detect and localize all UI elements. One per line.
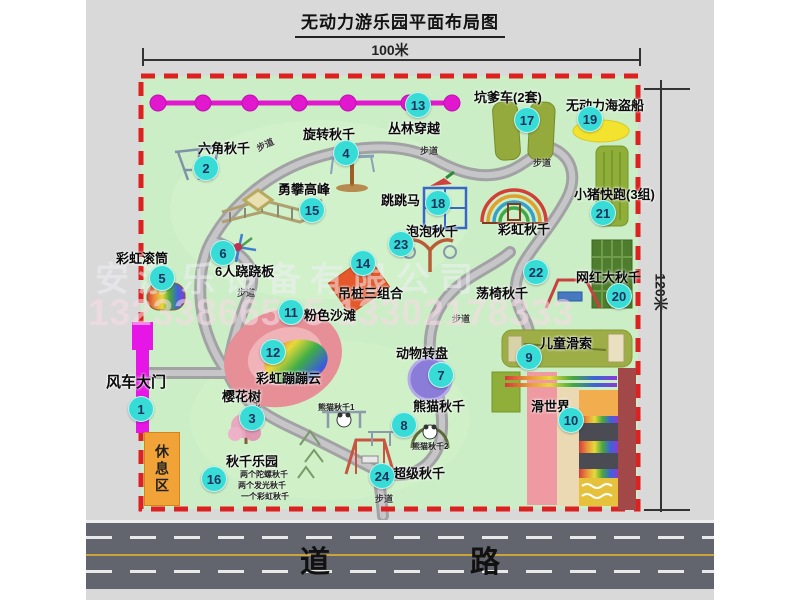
label-swing-paradise: 秋千乐园 xyxy=(226,451,278,470)
badge-19: 19 xyxy=(577,106,603,132)
label-bubble-swing: 泡泡秋千 xyxy=(406,221,458,240)
path-tag: 步道 xyxy=(375,492,393,505)
label-swing-chair: 荡椅秋千 xyxy=(476,283,528,302)
label-cherry-tree: 樱花树 xyxy=(222,386,261,405)
label-panda-swing-2: 熊猫秋千2 xyxy=(412,441,448,452)
badge-2: 2 xyxy=(193,155,219,181)
label-swing-paradise-note3: 一个彩虹秋千 xyxy=(241,491,289,502)
badge-18: 18 xyxy=(425,190,451,216)
rest-area-label: 休息区 xyxy=(152,444,172,495)
label-hanging-piles: 吊桩三组合 xyxy=(338,283,403,302)
badge-3: 3 xyxy=(239,405,265,431)
badge-23: 23 xyxy=(388,231,414,257)
badge-13: 13 xyxy=(405,92,431,118)
badge-11: 11 xyxy=(278,299,304,325)
label-rainbow-swing: 彩虹秋千 xyxy=(498,219,550,238)
label-pink-beach: 粉色沙滩 xyxy=(304,305,356,324)
badge-15: 15 xyxy=(299,197,325,223)
badge-6: 6 xyxy=(210,240,236,266)
badge-24: 24 xyxy=(369,463,395,489)
label-kids-zipline: 儿童滑索 xyxy=(540,333,592,352)
label-swing-paradise-note1: 两个陀螺秋千 xyxy=(240,469,288,480)
label-panda-swing-1: 熊猫秋千1 xyxy=(318,402,354,413)
badge-10: 10 xyxy=(558,407,584,433)
badge-12: 12 xyxy=(260,339,286,365)
road: 道 路 xyxy=(86,520,714,589)
label-panda-swing: 熊猫秋千 xyxy=(413,396,465,415)
label-climbing-peak: 勇攀高峰 xyxy=(278,179,330,198)
label-jungle-crossing: 丛林穿越 xyxy=(388,118,440,137)
label-bouncing-cloud: 彩虹蹦蹦云 xyxy=(256,368,321,387)
badge-5: 5 xyxy=(149,265,175,291)
path-tag: 步道 xyxy=(533,156,551,169)
label-swing-paradise-note2: 两个发光秋千 xyxy=(238,480,286,491)
playground-layout-map: 无动力游乐园平面布局图 100米 120米 xyxy=(0,0,800,600)
label-piggy-run: 小猪快跑(3组) xyxy=(574,184,655,203)
badge-22: 22 xyxy=(523,259,549,285)
badge-9: 9 xyxy=(516,344,542,370)
path-tag: 步道 xyxy=(420,144,438,157)
label-big-net-swing: 网红大秋千 xyxy=(576,267,641,286)
label-windmill-gate: 风车大门 xyxy=(106,371,166,392)
label-animal-turntable: 动物转盘 xyxy=(396,343,448,362)
road-label: 道 路 xyxy=(86,537,714,581)
badge-14: 14 xyxy=(350,250,376,276)
badge-16: 16 xyxy=(201,466,227,492)
badge-17: 17 xyxy=(514,107,540,133)
badge-4: 4 xyxy=(333,140,359,166)
badge-1: 1 xyxy=(128,396,154,422)
label-pit-cars: 坑爹车(2套) xyxy=(474,87,542,106)
badge-7: 7 xyxy=(428,362,454,388)
label-jumping-horse: 跳跳马 xyxy=(381,190,420,209)
label-pirate-ship: 无动力海盗船 xyxy=(566,95,644,114)
label-super-swing: 超级秋千 xyxy=(393,463,445,482)
badge-8: 8 xyxy=(391,412,417,438)
badge-21: 21 xyxy=(590,200,616,226)
badge-20: 20 xyxy=(606,283,632,309)
rest-area: 休息区 xyxy=(144,432,180,506)
